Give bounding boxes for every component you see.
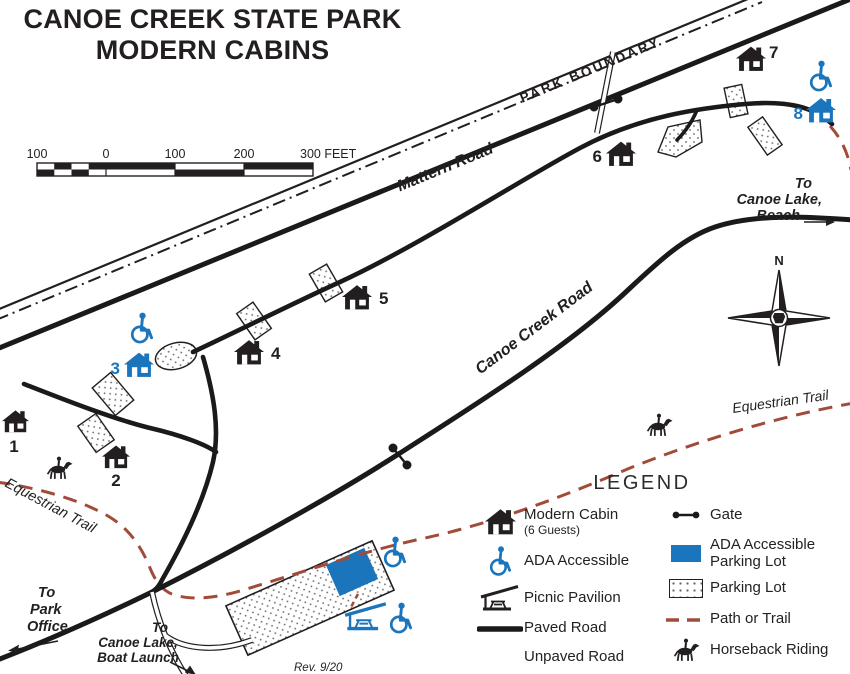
cabin-8-icon <box>806 98 836 122</box>
to-boat-line1: To <box>152 620 168 635</box>
legend-gate-label: Gate <box>710 507 743 524</box>
modern-cabin-icon <box>476 509 524 535</box>
horseback-icon-west <box>48 457 73 479</box>
cabin-2-icon <box>102 445 130 468</box>
map-title: CANOE CREEK STATE PARK MODERN CABINS <box>10 4 415 67</box>
compass-north-label: N <box>774 253 783 268</box>
legend-ada-accessible-label: ADA Accessible <box>524 553 629 570</box>
park-map: 1 2 3 4 5 6 7 8 PARK BOUNDARY Mattern Ro… <box>0 0 850 674</box>
compass-rose: N <box>728 253 830 366</box>
park-boundary-label: PARK BOUNDARY <box>518 34 663 106</box>
ada-icon-parking <box>385 537 404 566</box>
parking-lot-icon <box>662 579 710 598</box>
revision-note: Rev. 9/20 <box>294 662 343 674</box>
parking-lot-cabin-2 <box>78 414 114 453</box>
cabin-3-number: 3 <box>111 359 120 378</box>
legend-picnic-pavilion-label: Picnic Pavilion <box>524 590 621 607</box>
legend-item-gate: Gate <box>662 507 848 524</box>
legend: LEGEND Modern Cabin (6 Guests) ADA Acces… <box>476 466 848 666</box>
scale-bar: 100 0 100 200 300 FEET <box>27 147 357 176</box>
connector-road-line <box>152 357 216 592</box>
legend-item-picnic-pavilion: Picnic Pavilion <box>476 585 662 612</box>
legend-paved-road-label: Paved Road <box>524 620 607 637</box>
parking-lot-cabin-7 <box>724 84 748 117</box>
cabin-1-icon <box>2 410 29 432</box>
path-or-trail-icon <box>662 616 710 624</box>
scale-bar-labels: 100 0 100 200 300 FEET <box>27 147 357 161</box>
parking-lot-cabin-1 <box>92 372 134 415</box>
cabin-7-number: 7 <box>769 43 778 62</box>
mattern-road-label: Mattern Road <box>395 140 497 195</box>
paved-road-icon <box>476 625 524 633</box>
to-boat-line2: Canoe Lake, <box>98 635 178 650</box>
cabin-4-icon <box>234 340 264 364</box>
cabin-1-number: 1 <box>9 437 18 456</box>
legend-item-paved-road: Paved Road <box>476 620 662 637</box>
to-office-line1: To <box>38 585 55 601</box>
scale-label-200: 200 <box>234 147 255 161</box>
equestrian-trail-label-east: Equestrian Trail <box>731 387 830 416</box>
cabin-6-number: 6 <box>593 147 602 166</box>
ada-parking-icon <box>662 545 710 562</box>
ada-icon-cabin-3 <box>132 313 151 342</box>
ada-accessible-icon <box>476 546 524 577</box>
legend-parking-lot-label: Parking Lot <box>710 580 786 597</box>
legend-item-unpaved-road: Unpaved Road <box>476 649 662 666</box>
legend-title: LEGEND <box>476 472 808 495</box>
cabin-5-number: 5 <box>379 289 388 308</box>
horseback-icon-east <box>648 414 673 436</box>
legend-item-parking-lot: Parking Lot <box>662 579 848 598</box>
legend-item-ada-parking: ADA Accessible Parking Lot <box>662 537 848 571</box>
legend-modern-cabin-label: Modern Cabin <box>524 507 618 524</box>
parking-lot-cabin-3-oval <box>152 338 199 374</box>
legend-item-horseback-riding: Horseback Riding <box>662 638 848 663</box>
cabin-6-icon <box>606 142 636 166</box>
legend-ada-parking-label1: ADA Accessible <box>710 537 815 554</box>
to-office-line2: Park <box>30 602 62 618</box>
legend-ada-parking-label2: Parking Lot <box>710 554 815 571</box>
to-beach-line1: To <box>795 176 812 192</box>
scale-label-300-feet: 300 FEET <box>300 147 357 161</box>
legend-item-modern-cabin: Modern Cabin (6 Guests) <box>476 507 662 537</box>
parking-lot-cabin-8 <box>748 117 782 155</box>
ada-icon-pavilion <box>391 603 410 632</box>
scale-label-0: 0 <box>103 147 110 161</box>
ada-icon-cabin-8 <box>811 61 830 90</box>
cabin-3-icon <box>124 353 154 377</box>
scale-bar-segments <box>37 163 313 176</box>
to-boat-line3: Boat Launch <box>97 650 179 665</box>
map-title-line1: CANOE CREEK STATE PARK <box>10 4 415 35</box>
legend-horseback-riding-label: Horseback Riding <box>710 642 828 659</box>
cabin-2-number: 2 <box>111 471 120 490</box>
legend-unpaved-road-label: Unpaved Road <box>524 649 624 666</box>
picnic-pavilion-icon <box>476 585 524 612</box>
horseback-riding-icon <box>662 638 710 663</box>
to-office-line3: Office <box>27 619 68 635</box>
to-beach-line3: Beach <box>756 208 800 224</box>
cabin-5-icon <box>342 285 372 309</box>
legend-path-or-trail-label: Path or Trail <box>710 611 791 628</box>
legend-item-ada-accessible: ADA Accessible <box>476 546 662 577</box>
map-title-line2: MODERN CABINS <box>10 35 415 66</box>
cabin-7-icon <box>736 47 766 71</box>
cabin-8-number: 8 <box>794 104 803 123</box>
to-beach-line2: Canoe Lake, <box>737 192 822 208</box>
scale-label-100e: 100 <box>165 147 186 161</box>
cabin-4-number: 4 <box>271 344 281 363</box>
scale-label-100w: 100 <box>27 147 48 161</box>
legend-modern-cabin-sublabel: (6 Guests) <box>524 524 618 537</box>
gate-icon <box>662 508 710 522</box>
legend-item-path-or-trail: Path or Trail <box>662 611 848 628</box>
